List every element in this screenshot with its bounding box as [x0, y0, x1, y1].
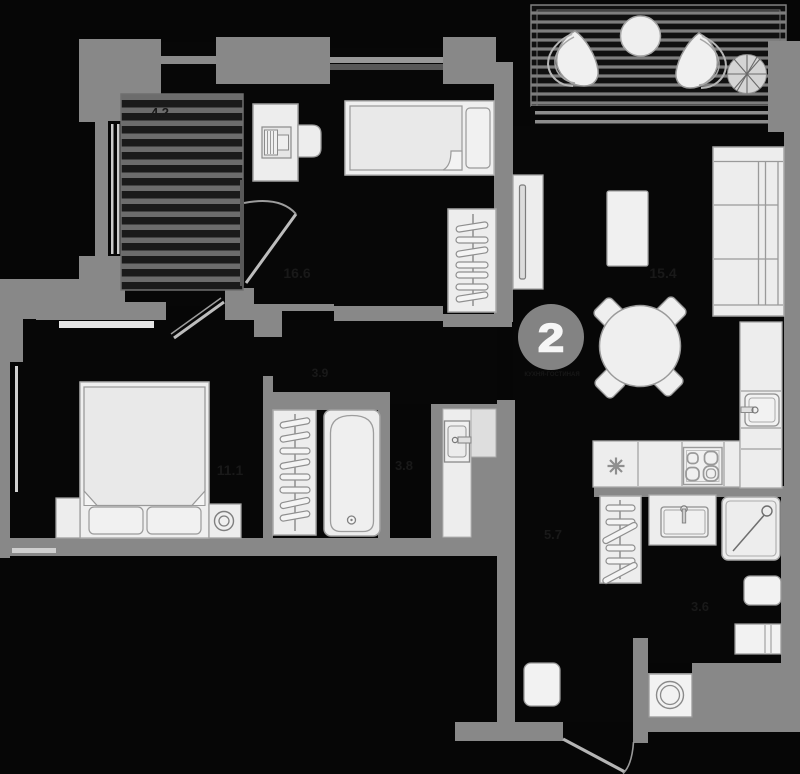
svg-text:3.8: 3.8	[395, 458, 413, 473]
svg-text:16.6: 16.6	[283, 265, 310, 281]
svg-text:3.6: 3.6	[691, 599, 709, 614]
svg-text:5.7: 5.7	[544, 527, 562, 542]
svg-text:КУХНЯ-ГОСТИНАЯ: КУХНЯ-ГОСТИНАЯ	[524, 372, 579, 378]
svg-text:11.1: 11.1	[217, 462, 244, 478]
svg-text:2: 2	[538, 316, 564, 361]
svg-text:4.2: 4.2	[151, 105, 169, 120]
svg-text:15.4: 15.4	[649, 265, 676, 281]
svg-text:3.9: 3.9	[312, 366, 329, 380]
